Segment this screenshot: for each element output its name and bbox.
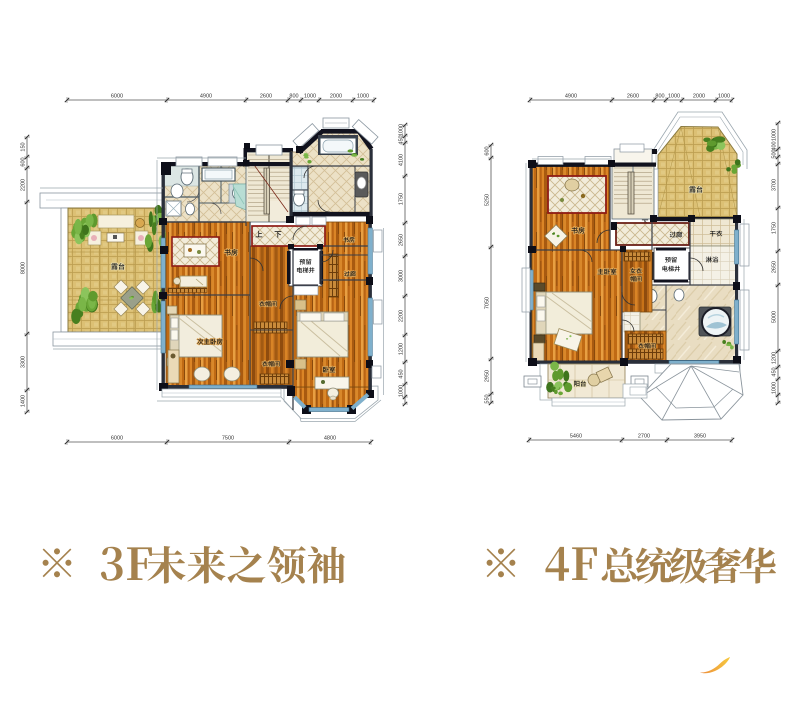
svg-text:7500: 7500 <box>222 436 234 442</box>
svg-text:150: 150 <box>21 142 27 151</box>
svg-text:1000: 1000 <box>399 124 405 136</box>
svg-text:2650: 2650 <box>772 261 778 273</box>
svg-text:4900: 4900 <box>200 94 212 100</box>
svg-text:4100: 4100 <box>399 154 405 166</box>
svg-text:1000: 1000 <box>718 94 730 100</box>
svg-text:2000: 2000 <box>330 94 342 100</box>
svg-text:2950: 2950 <box>485 370 491 382</box>
svg-text:2200: 2200 <box>21 179 27 191</box>
svg-text:3700: 3700 <box>772 179 778 191</box>
svg-text:7050: 7050 <box>485 297 491 309</box>
svg-text:4900: 4900 <box>565 94 577 100</box>
svg-text:550: 550 <box>485 394 491 403</box>
svg-text:8000: 8000 <box>21 262 27 274</box>
svg-text:3950: 3950 <box>694 434 706 440</box>
svg-text:6000: 6000 <box>111 94 123 100</box>
svg-text:2200: 2200 <box>399 310 405 322</box>
svg-text:800: 800 <box>655 94 664 100</box>
svg-text:2700: 2700 <box>638 434 650 440</box>
svg-text:5000: 5000 <box>772 311 778 323</box>
svg-text:3000: 3000 <box>399 270 405 282</box>
svg-text:800: 800 <box>289 94 298 100</box>
svg-text:400: 400 <box>772 141 778 150</box>
svg-text:1000: 1000 <box>399 385 405 397</box>
svg-text:1000: 1000 <box>357 94 369 100</box>
svg-text:1400: 1400 <box>21 395 27 407</box>
svg-text:1200: 1200 <box>772 352 778 364</box>
svg-text:2650: 2650 <box>399 234 405 246</box>
svg-text:1000: 1000 <box>304 94 316 100</box>
svg-text:2600: 2600 <box>627 94 639 100</box>
svg-text:1000: 1000 <box>772 129 778 141</box>
svg-text:450: 450 <box>399 135 405 144</box>
svg-text:500: 500 <box>772 149 778 158</box>
svg-text:1750: 1750 <box>772 222 778 234</box>
svg-text:1200: 1200 <box>399 343 405 355</box>
svg-text:4800: 4800 <box>324 436 336 442</box>
svg-text:2000: 2000 <box>693 94 705 100</box>
svg-text:450: 450 <box>399 369 405 378</box>
svg-text:450: 450 <box>772 367 778 376</box>
svg-text:2600: 2600 <box>260 94 272 100</box>
svg-text:600: 600 <box>485 146 491 155</box>
svg-text:600: 600 <box>21 157 27 166</box>
svg-text:3300: 3300 <box>21 356 27 368</box>
svg-text:5250: 5250 <box>485 194 491 206</box>
svg-text:1750: 1750 <box>399 193 405 205</box>
svg-text:1000: 1000 <box>772 382 778 394</box>
svg-text:5460: 5460 <box>570 434 582 440</box>
svg-text:6000: 6000 <box>111 436 123 442</box>
svg-text:1000: 1000 <box>668 94 680 100</box>
